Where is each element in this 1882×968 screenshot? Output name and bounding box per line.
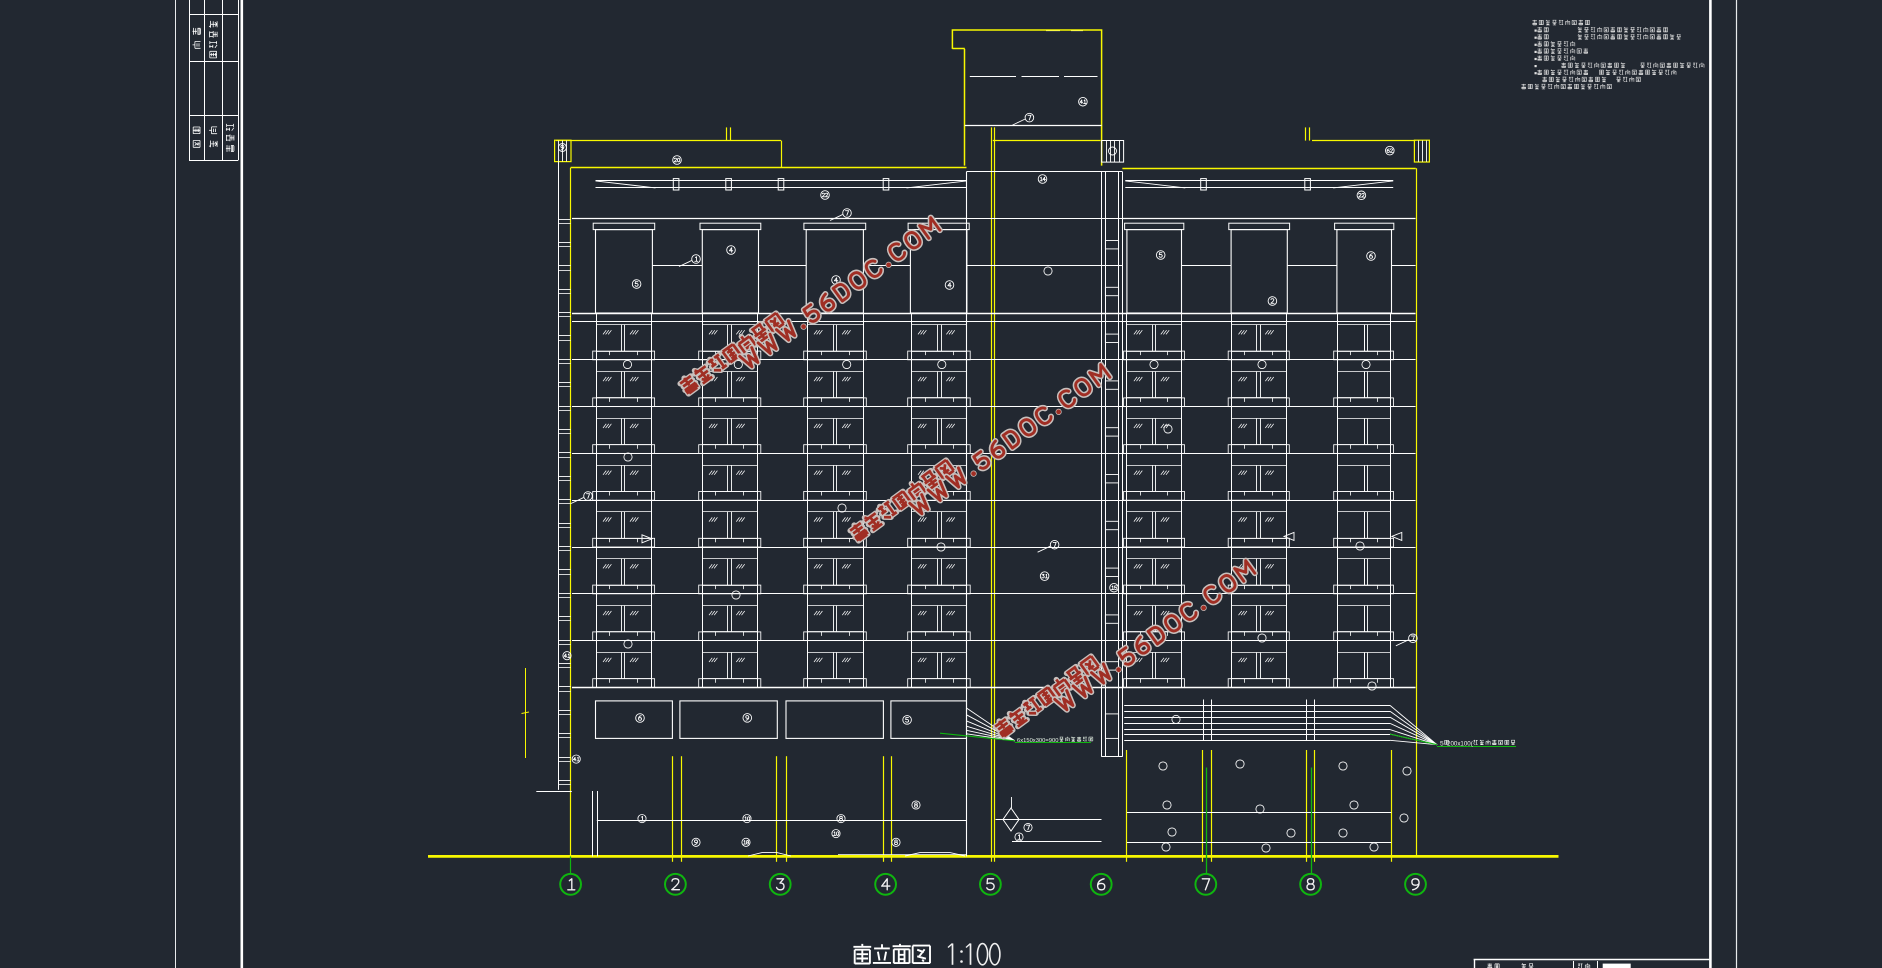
svg-text:5: 5 bbox=[1440, 741, 1444, 748]
svg-text:6x150x300=900: 6x150x300=900 bbox=[1017, 738, 1058, 744]
svg-text:200x100(: 200x100( bbox=[1447, 741, 1474, 748]
